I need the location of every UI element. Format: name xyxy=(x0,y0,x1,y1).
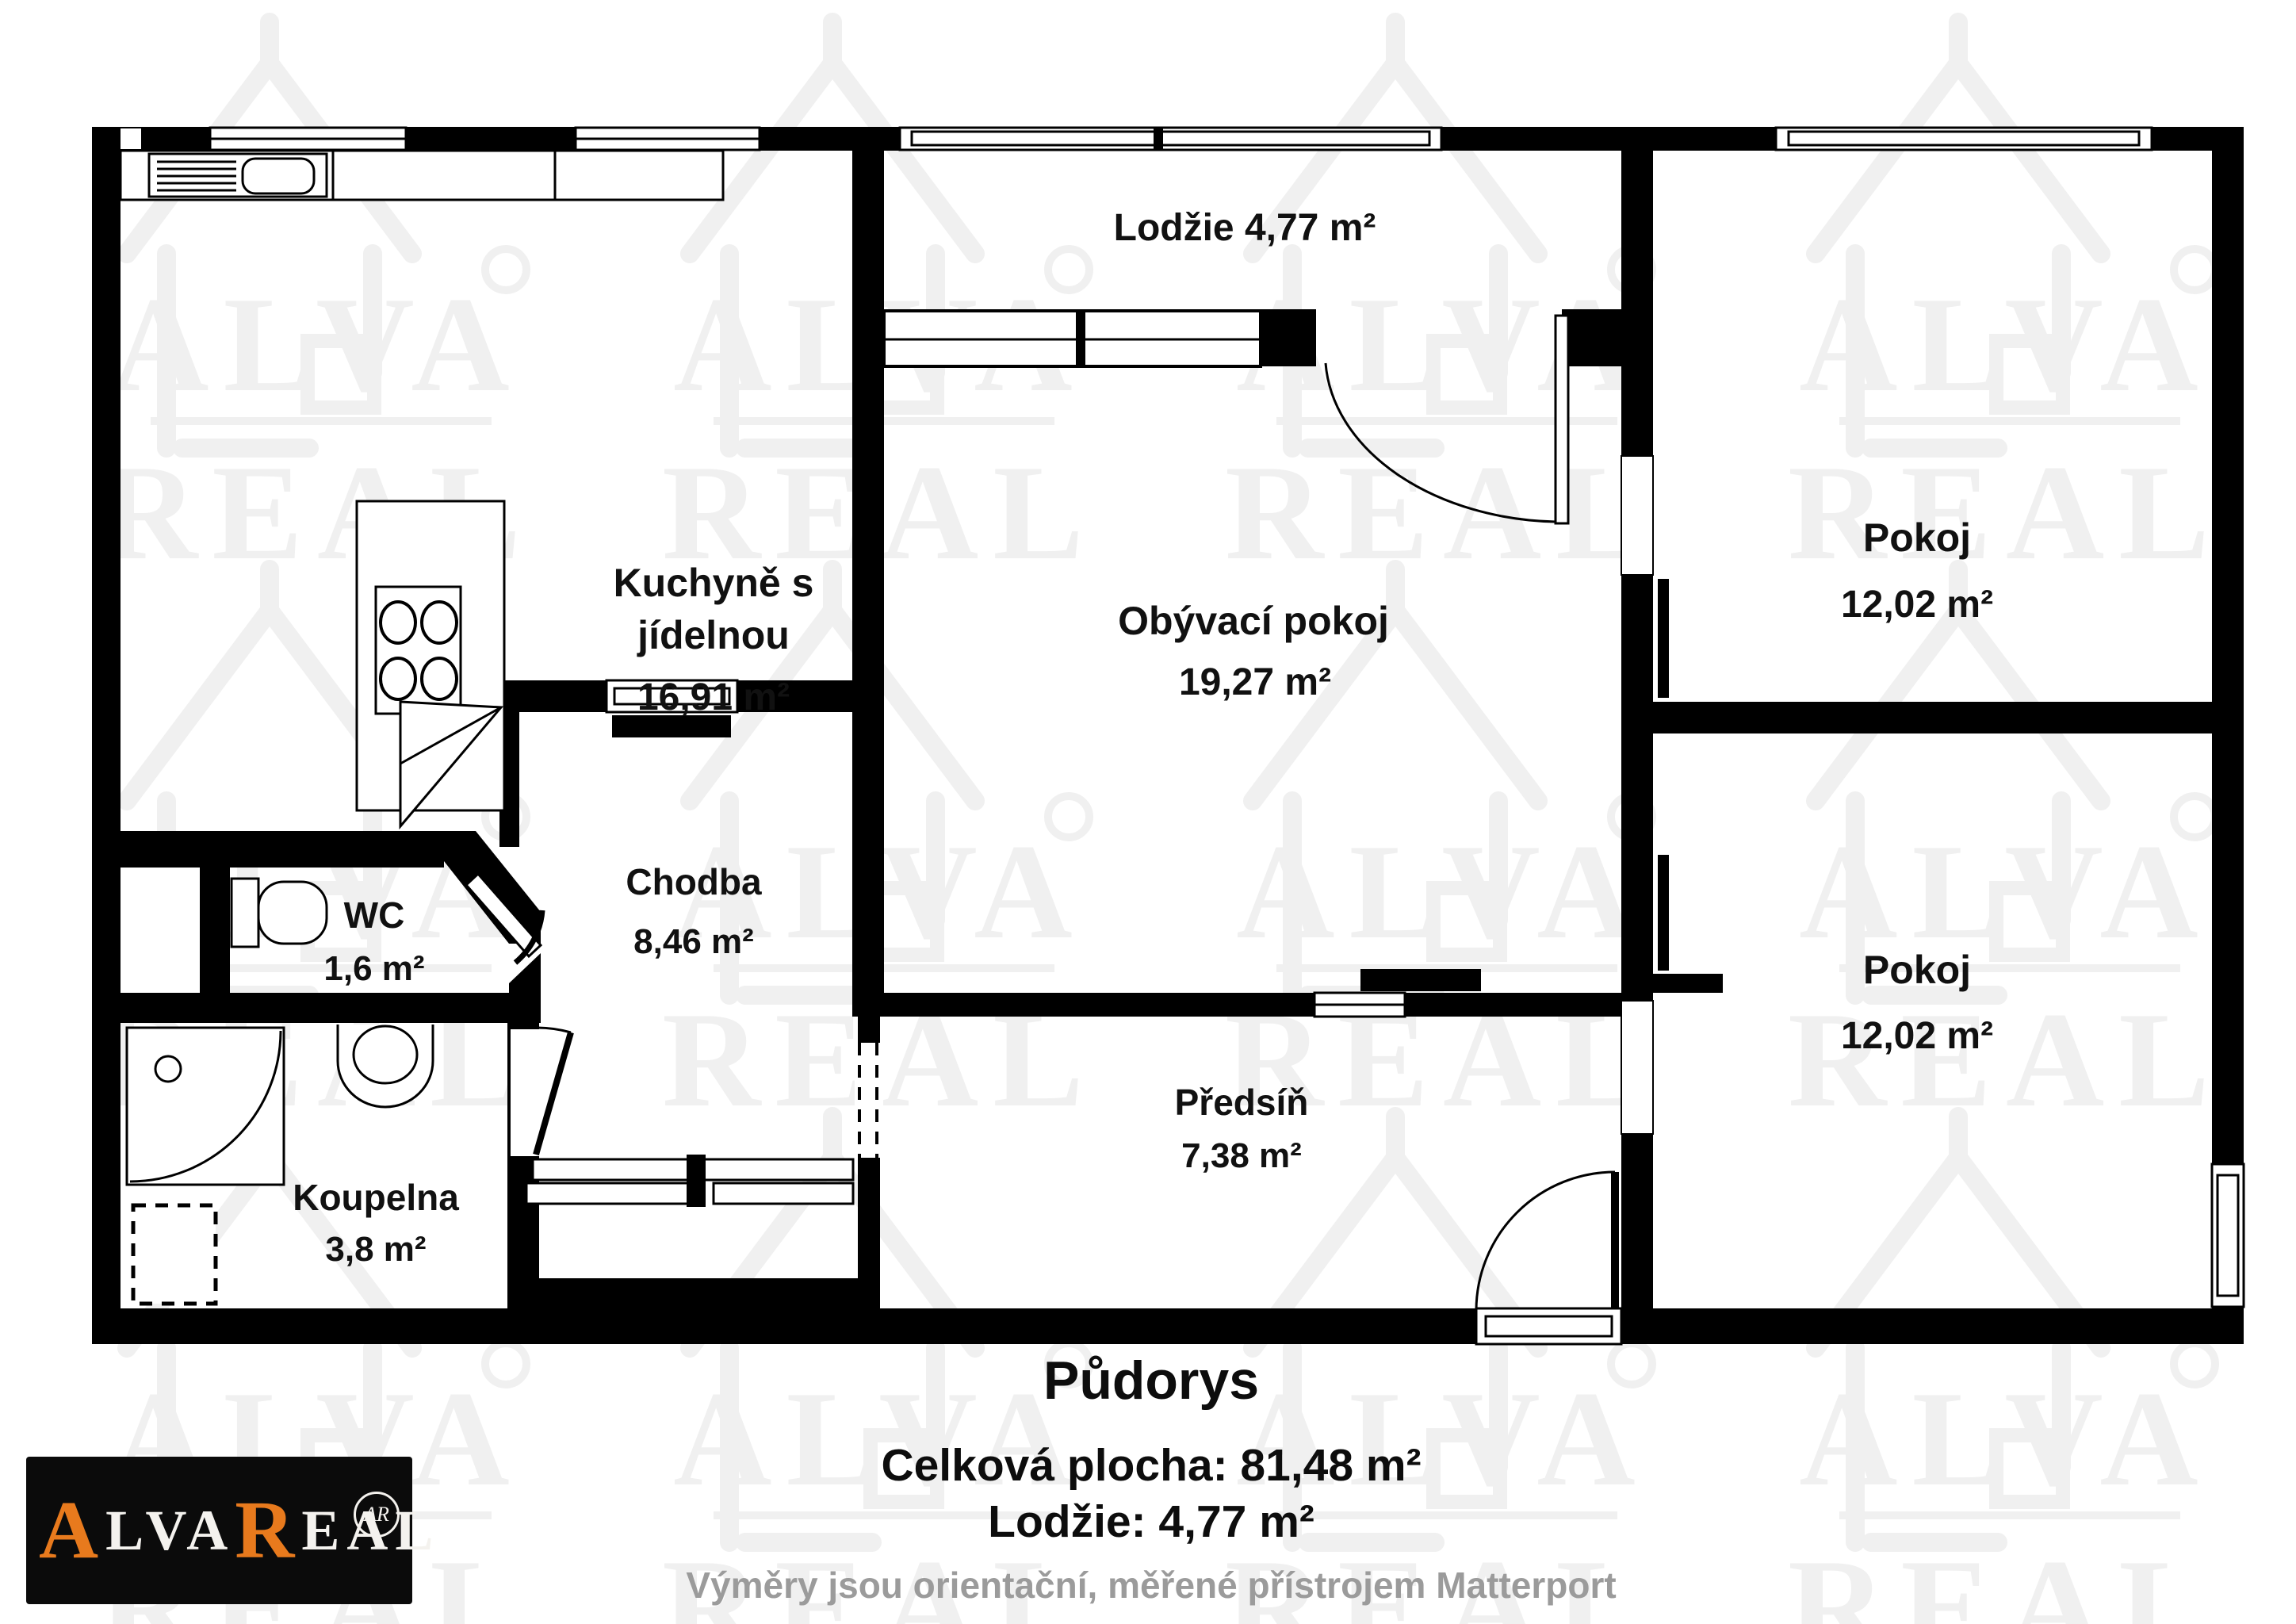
logo-initial-r: R xyxy=(235,1489,301,1572)
toilet-icon xyxy=(232,879,327,947)
label-entry-area: 7,38 m² xyxy=(1181,1136,1302,1175)
company-logo: A LVA R EAL AR xyxy=(26,1457,412,1604)
window-room2-right xyxy=(2212,1164,2244,1307)
stove-icon xyxy=(376,587,461,714)
label-room1-area: 12,02 m² xyxy=(1841,584,1993,626)
door-bath-leaf xyxy=(536,1032,571,1155)
wall-kitchen-living-divider xyxy=(852,151,884,1017)
door-balcony-leaf xyxy=(1556,316,1568,523)
kitchen-sink-icon xyxy=(149,154,327,197)
logo-word-alva: LVA xyxy=(105,1502,235,1559)
total-area-text: Celková plocha: 81,48 m² xyxy=(881,1439,1421,1492)
label-loggia: Lodžie 4,77 m² xyxy=(1114,207,1376,249)
wall-kitchen-bottom xyxy=(92,831,444,868)
door-bath xyxy=(536,1028,571,1155)
door-bath-arc xyxy=(538,1028,571,1032)
opening-room2-door xyxy=(1621,1001,1653,1134)
opening-bath-door xyxy=(511,1029,539,1156)
measurement-note: Výměry jsou orientační, měřené přístroje… xyxy=(686,1564,1616,1607)
wall-rooms-horizontal-divider xyxy=(1653,702,2212,733)
wall-living-entry-divider xyxy=(880,993,1621,1017)
wall-wc-left xyxy=(200,868,230,993)
door-living-leaf xyxy=(1360,969,1481,991)
wall-exterior-right xyxy=(2212,127,2244,1344)
door-room1-leaf xyxy=(1658,579,1669,698)
page: ALVA REAL xyxy=(0,0,2296,1624)
door-kitchen-leaf xyxy=(612,715,731,737)
opening-living-entry xyxy=(1314,993,1405,1017)
wall-exterior-left xyxy=(92,127,121,1344)
label-wc-name: WC xyxy=(344,894,405,936)
page-title: Půdorys xyxy=(1043,1350,1259,1411)
wall-bottom-inner-lining xyxy=(507,1278,880,1308)
wall-exterior-bottom xyxy=(92,1308,2244,1344)
shaft-niche xyxy=(121,868,200,993)
window-loggia-top xyxy=(900,128,1441,150)
wardrobe xyxy=(526,1155,853,1207)
loggia-area-text: Lodžie: 4,77 m² xyxy=(988,1496,1314,1548)
washbasin-icon xyxy=(338,1025,433,1107)
wall-stub-room2 xyxy=(1653,974,1723,993)
label-hall-name: Chodba xyxy=(626,861,762,902)
window-room1-top xyxy=(1776,128,2152,150)
opening-room1-door xyxy=(1621,456,1653,575)
door-room2-leaf xyxy=(1658,855,1669,971)
label-living-name: Obývací pokoj xyxy=(1118,599,1389,643)
label-bath-area: 3,8 m² xyxy=(325,1230,426,1269)
logo-ar-monogram-icon: AR xyxy=(354,1492,400,1538)
label-bath-name: Koupelna xyxy=(293,1177,459,1218)
shower-icon xyxy=(127,1028,284,1185)
label-kitchen-line2: jídelnou xyxy=(637,613,790,657)
label-hall-area: 8,46 m² xyxy=(633,922,754,961)
wall-wc-bath-divider xyxy=(92,993,539,1023)
label-room2-name: Pokoj xyxy=(1863,948,1971,992)
label-room1-name: Pokoj xyxy=(1863,515,1971,560)
wall-loggia-right xyxy=(1562,309,1621,366)
opening-entrance xyxy=(1476,1308,1621,1344)
washing-machine-icon xyxy=(133,1205,216,1304)
label-wc-area: 1,6 m² xyxy=(323,949,424,988)
window-kitchen-1 xyxy=(210,128,406,150)
window-kitchen-2 xyxy=(576,128,760,150)
label-entry-name: Předsíň xyxy=(1175,1082,1309,1123)
label-living-area: 19,27 m² xyxy=(1179,661,1331,703)
window-loggia-living xyxy=(884,311,1261,366)
label-room2-area: 12,02 m² xyxy=(1841,1015,1993,1057)
opening-hall-entry-dashed xyxy=(855,1043,883,1158)
label-kitchen-area: 16,91 m² xyxy=(637,676,790,718)
label-kitchen-line1: Kuchyně s xyxy=(614,561,814,605)
wall-niche xyxy=(121,128,141,149)
logo-initial-a: A xyxy=(39,1489,105,1572)
wall-loggia-pier xyxy=(1261,309,1316,366)
